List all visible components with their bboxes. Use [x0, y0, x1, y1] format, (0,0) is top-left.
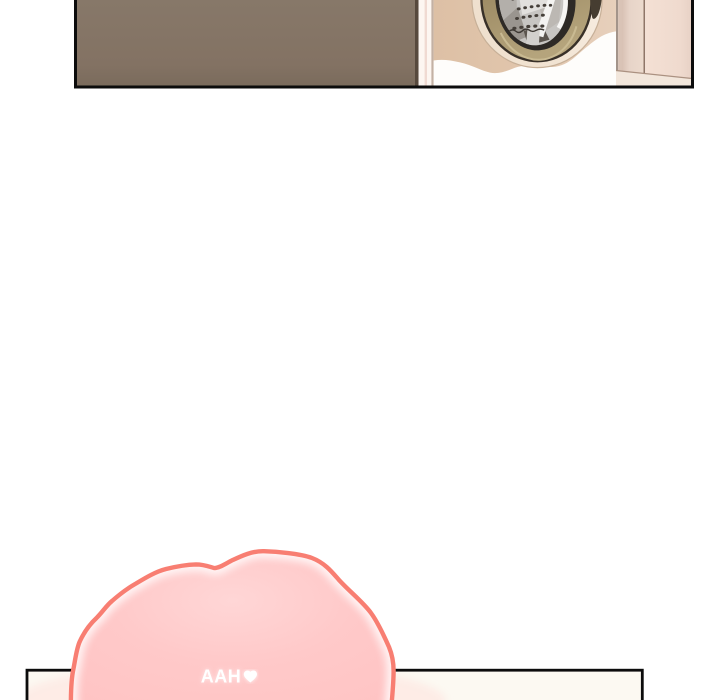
svg-text:AAH: AAH	[201, 667, 242, 687]
